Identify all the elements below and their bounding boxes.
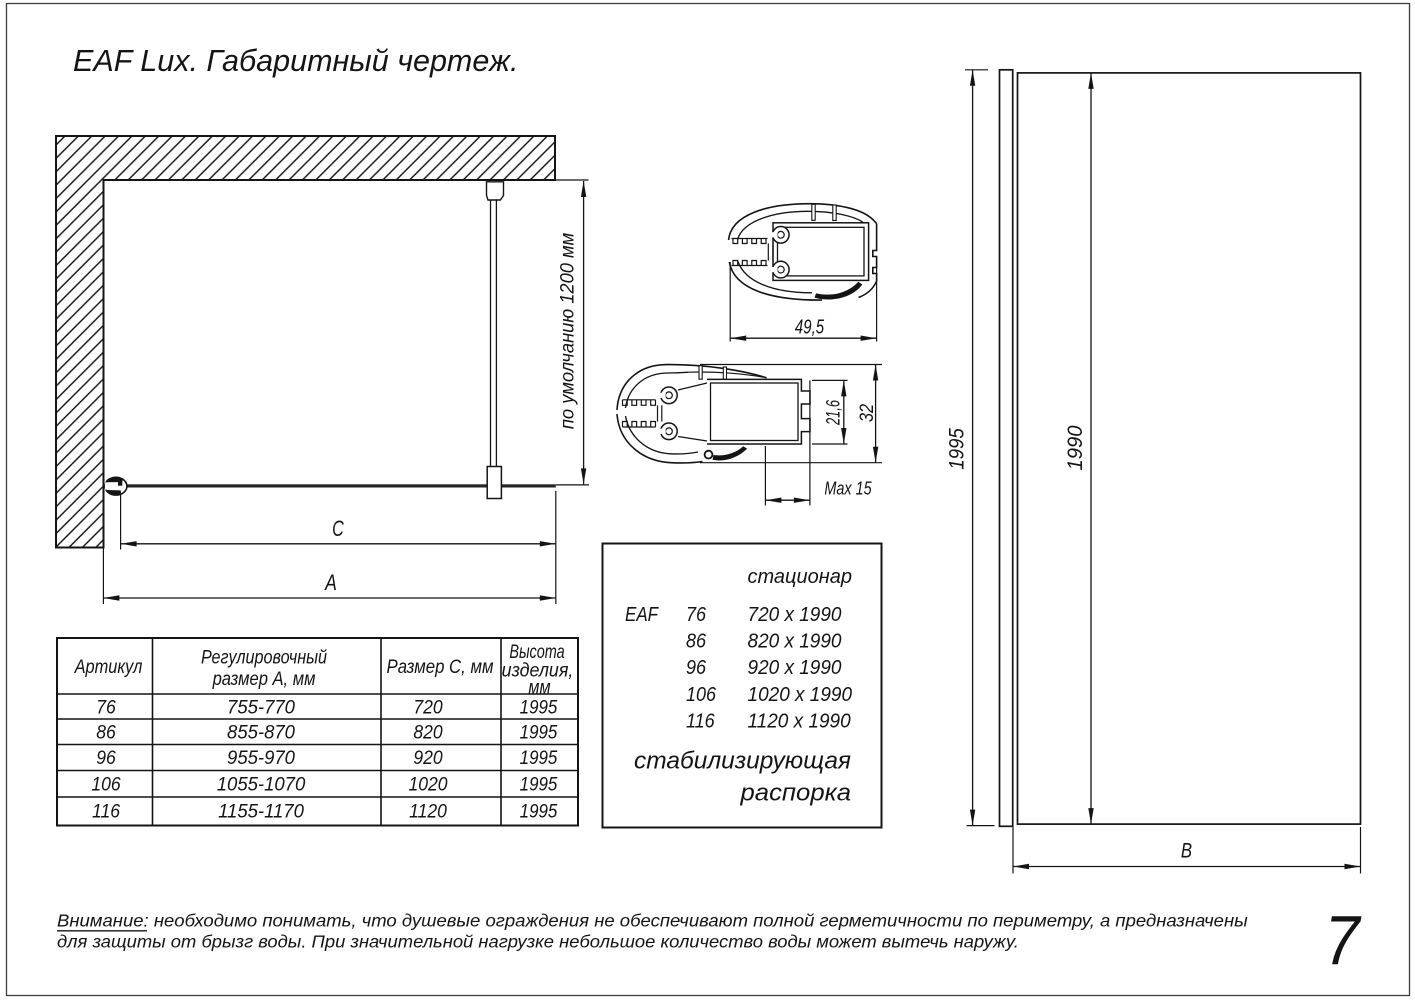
svg-text:EAF Lux. Габаритный чертеж.: EAF Lux. Габаритный чертеж. <box>73 43 518 78</box>
svg-text:1155-1170: 1155-1170 <box>218 801 304 823</box>
svg-text:стабилизирующая: стабилизирующая <box>634 748 851 775</box>
svg-text:7: 7 <box>1324 902 1362 980</box>
svg-text:A: A <box>324 571 337 596</box>
svg-text:820: 820 <box>413 721 443 743</box>
svg-text:Регулировочный: Регулировочный <box>201 646 327 668</box>
svg-text:1995: 1995 <box>520 799 558 821</box>
svg-text:106: 106 <box>91 773 121 795</box>
svg-text:96: 96 <box>96 746 116 768</box>
svg-text:820 x 1990: 820 x 1990 <box>748 630 842 653</box>
svg-text:32: 32 <box>856 404 877 422</box>
svg-text:стационар: стационар <box>748 566 853 588</box>
svg-text:76: 76 <box>96 696 116 718</box>
svg-text:1995: 1995 <box>945 427 968 469</box>
svg-text:920 x 1990: 920 x 1990 <box>748 657 842 680</box>
svg-text:1995: 1995 <box>520 746 558 768</box>
svg-text:для защиты от брызг воды. При: для защиты от брызг воды. При значительн… <box>57 932 1019 951</box>
svg-text:Артикул: Артикул <box>74 656 143 678</box>
svg-text:1995: 1995 <box>520 695 558 717</box>
svg-text:21,6: 21,6 <box>823 399 844 426</box>
svg-text:755-770: 755-770 <box>227 697 295 719</box>
svg-text:распорка: распорка <box>739 780 851 806</box>
svg-text:116: 116 <box>92 800 121 822</box>
svg-text:EAF: EAF <box>625 603 660 626</box>
svg-text:1020: 1020 <box>408 773 448 795</box>
svg-text:855-870: 855-870 <box>227 722 295 744</box>
svg-text:96: 96 <box>686 657 706 679</box>
svg-text:размер А, мм: размер А, мм <box>212 668 316 690</box>
svg-text:1995: 1995 <box>520 720 558 742</box>
svg-text:1120 x 1990: 1120 x 1990 <box>748 710 851 733</box>
svg-text:49,5: 49,5 <box>795 315 824 338</box>
svg-text:86: 86 <box>96 721 116 743</box>
svg-text:по умолчанию 1200 мм: по умолчанию 1200 мм <box>557 233 579 429</box>
svg-text:B: B <box>1181 840 1192 863</box>
svg-text:1120: 1120 <box>409 800 447 822</box>
svg-text:955-970: 955-970 <box>227 748 295 770</box>
svg-text:1020 x 1990: 1020 x 1990 <box>748 684 853 707</box>
svg-text:920: 920 <box>413 746 443 768</box>
svg-text:116: 116 <box>686 711 715 733</box>
svg-text:1055-1070: 1055-1070 <box>217 774 306 796</box>
svg-text:720 x 1990: 720 x 1990 <box>748 604 842 627</box>
svg-text:Max 15: Max 15 <box>824 478 872 499</box>
svg-text:1990: 1990 <box>1063 425 1087 470</box>
svg-text:106: 106 <box>686 684 716 706</box>
svg-text:76: 76 <box>686 604 706 626</box>
svg-text:Внимание: необходимо понимать,: Внимание: необходимо понимать, что душев… <box>57 911 1248 930</box>
svg-text:720: 720 <box>413 696 443 718</box>
svg-text:1995: 1995 <box>520 772 558 794</box>
svg-text:Размер C, мм: Размер C, мм <box>387 656 494 677</box>
svg-text:86: 86 <box>686 631 706 653</box>
svg-text:C: C <box>332 516 344 541</box>
